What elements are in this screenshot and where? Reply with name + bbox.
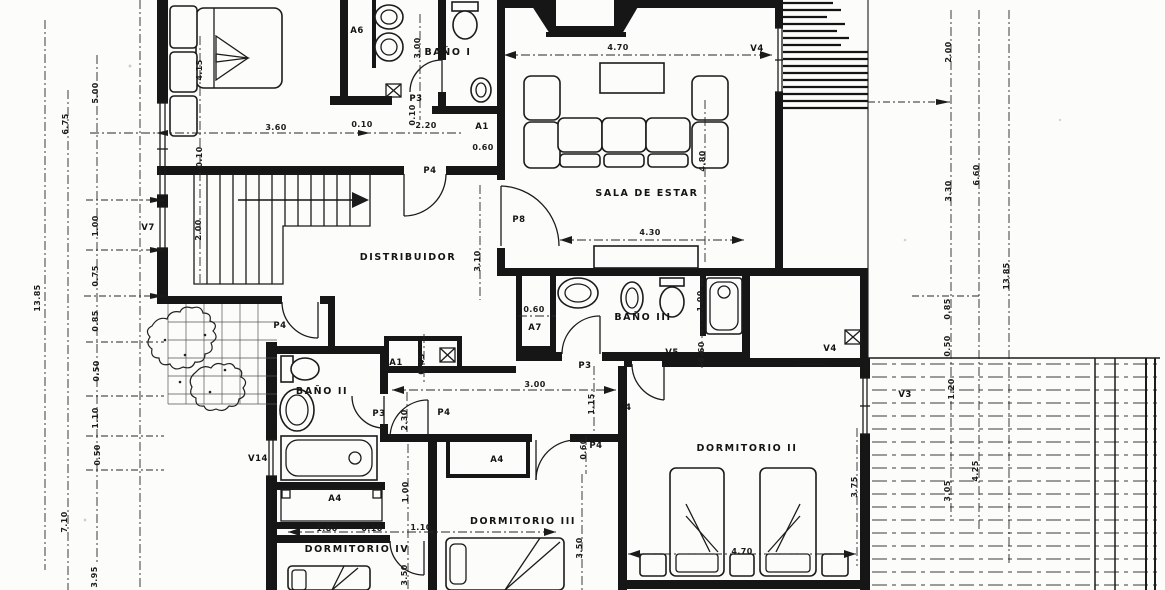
dimension-label: 1.15 <box>587 393 596 414</box>
dimension-label: 0.60 <box>697 341 706 362</box>
bidet-bath3 <box>621 282 643 314</box>
dimension-label: 2.00 <box>194 219 203 240</box>
dimension-label: 0.60 <box>579 438 588 459</box>
window-tag-label: V14 <box>248 454 268 464</box>
dimension-label: 3.95 <box>90 566 99 587</box>
window-v7 <box>157 207 168 248</box>
dimension-label: 5.00 <box>91 82 100 103</box>
dimension-label: 0.45 <box>417 353 426 374</box>
window-v3 <box>860 378 870 434</box>
dimension-label: 1.00 <box>401 481 410 502</box>
dimension-label: 4.70 <box>607 43 628 52</box>
windows <box>157 28 870 476</box>
door-tag-label: P8 <box>512 215 525 225</box>
room-name-label: DORMITORIO II <box>697 443 798 454</box>
door-tag-label: A4 <box>328 494 342 504</box>
room-name-label: BAÑO II <box>296 386 348 397</box>
bed-dorm2-right <box>760 468 816 576</box>
dimension-label: 1.10 <box>91 407 100 428</box>
door-tag-label: P3 <box>409 94 422 104</box>
dimension-label: 0.50 <box>943 335 952 356</box>
window-v4-sala <box>775 28 783 92</box>
bed-dorm3 <box>446 538 564 590</box>
dimension-label: 13.85 <box>33 284 42 311</box>
dimension-label: 0.85 <box>943 298 952 319</box>
dimension-label: 4.15 <box>195 59 204 80</box>
door-tag-label: P4 <box>618 403 631 413</box>
dimension-label: 1.10 <box>410 523 431 532</box>
dimension-label: 0.75 <box>91 265 100 286</box>
room-name-label: DORMITORIO III <box>470 516 576 527</box>
wardrobe-units <box>170 6 197 136</box>
dimension-label: 0.60 <box>523 305 544 314</box>
dimension-label: 0.10 <box>361 524 382 533</box>
dimension-label: 3.05 <box>943 480 952 501</box>
dimension-label: 6.60 <box>972 164 981 185</box>
door-tag-label: P4 <box>437 408 450 418</box>
dimension-label: 0.10 <box>195 146 204 167</box>
room-name-label: DISTRIBUIDOR <box>360 252 457 263</box>
room-name-label: DORMITORIO IV <box>305 544 410 555</box>
window-tag-label: V5 <box>665 348 679 358</box>
sofa-left <box>524 76 560 168</box>
door-tag-label: A7 <box>528 323 542 333</box>
coffee-table <box>600 63 664 93</box>
door-tag-label: P4 <box>273 321 286 331</box>
dimension-label: 7.10 <box>60 511 69 532</box>
dimension-label: 1.20 <box>947 378 956 399</box>
dimension-label: 0.50 <box>92 360 101 381</box>
door-tag-label: A4 <box>490 455 504 465</box>
window-tag-label: V3 <box>898 390 912 400</box>
dimension-label: 3.00 <box>413 37 422 58</box>
bed-dorm2-left <box>670 468 724 576</box>
dimension-label: 1.00 <box>91 215 100 236</box>
toilet-bath1 <box>452 2 478 39</box>
window-tag-label: V7 <box>141 223 155 233</box>
bidet-bath1 <box>471 78 491 102</box>
dimension-label: 1.80 <box>316 524 337 533</box>
door-tag-label: A1 <box>475 122 489 132</box>
dimension-label: 4.70 <box>731 547 752 556</box>
dimension-label: 4.30 <box>639 228 660 237</box>
dimension-label: 0.10 <box>351 120 372 129</box>
double-washbasin <box>375 5 403 61</box>
fireplace <box>528 0 642 37</box>
plant <box>147 307 245 410</box>
dimension-label: 0.10 <box>408 104 417 125</box>
dimension-label: 3.50 <box>575 537 584 558</box>
dimension-label: 3.00 <box>524 380 545 389</box>
door-tag-label: P3 <box>372 409 385 419</box>
bed-dorm4 <box>288 566 370 590</box>
room-name-label: BAÑO III <box>614 312 671 323</box>
dimension-label: 0.50 <box>93 444 102 465</box>
dimension-label: 3.30 <box>944 180 953 201</box>
door-tag-label: P4 <box>589 441 602 451</box>
dimension-label: 0.85 <box>91 310 100 331</box>
dimension-label: 4.25 <box>971 460 980 481</box>
dimension-label: 2.20 <box>415 121 436 130</box>
window-bedroom-left <box>157 103 168 195</box>
room-name-label: SALA DE ESTAR <box>595 188 698 199</box>
floor-plan-canvas: SALA DE ESTARDISTRIBUIDORBAÑO IBAÑO IIBA… <box>0 0 1165 590</box>
dimension-label: 6.75 <box>61 113 70 134</box>
dimension-label: 4.80 <box>698 150 707 171</box>
dimension-label: 3.60 <box>265 123 286 132</box>
dimension-label: 3.10 <box>473 250 482 271</box>
shower-tray <box>706 278 742 334</box>
door-tag-label: A1 <box>389 358 403 368</box>
dimension-label: 3.50 <box>400 564 409 585</box>
bathtub <box>281 436 377 480</box>
dimension-label: 3.75 <box>850 476 859 497</box>
dimension-label: 2.30 <box>400 409 409 430</box>
double-bed <box>196 8 282 88</box>
dimension-label: 0.60 <box>472 143 493 152</box>
room-name-label: BAÑO I <box>424 47 471 58</box>
closet-a4-dorm3 <box>448 438 528 476</box>
terrace-deck <box>868 358 1160 590</box>
window-tag-label: V4 <box>750 44 764 54</box>
dimension-label: 13.85 <box>1002 262 1011 289</box>
exterior-steps-hatch <box>783 0 868 358</box>
toilet-bath2 <box>281 356 319 382</box>
door-tag-label: P4 <box>423 166 436 176</box>
sideboard <box>594 246 698 268</box>
door-tag-label: P3 <box>578 361 591 371</box>
washbasin-bath3 <box>558 278 598 308</box>
floor-plan-drawing: SALA DE ESTARDISTRIBUIDORBAÑO IBAÑO IIBA… <box>0 0 1165 590</box>
window-tag-label: V4 <box>823 344 837 354</box>
dimension-label: 2.00 <box>944 41 953 62</box>
dimension-label: 1.00 <box>696 290 705 311</box>
stair-treads <box>207 174 350 284</box>
staircase <box>194 174 370 284</box>
door-tag-label: A6 <box>350 26 364 36</box>
sofa-center <box>558 118 690 167</box>
